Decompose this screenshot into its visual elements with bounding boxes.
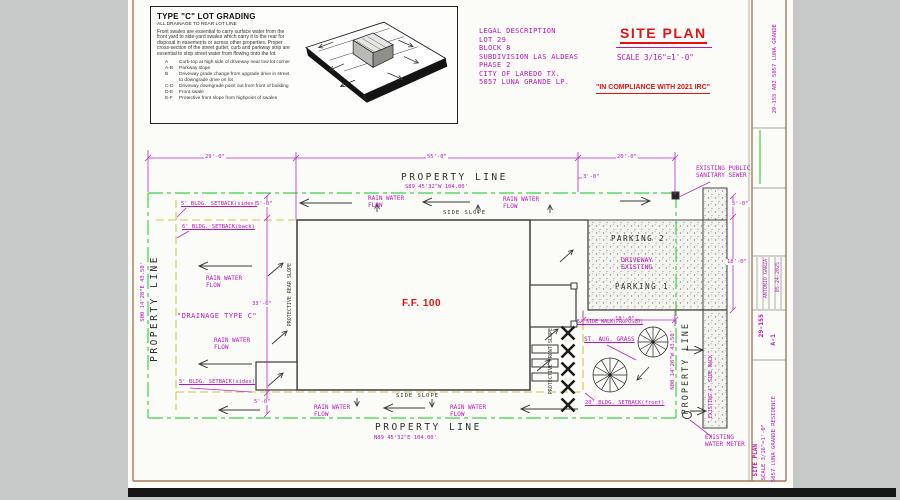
dim-20ft: 20'-0" (616, 154, 638, 160)
property-line-label-top: PROPERTY LINE (401, 173, 508, 184)
title-block-designer: ANTONIO GARZA (763, 259, 769, 298)
cad-viewer: TYPE "C" LOT GRADING ALL DRAINAGE TO REA… (0, 0, 900, 500)
title-block-title: SITE PLAN (752, 444, 759, 477)
rain-water-flow-label: RAIN WATER FLOW (206, 276, 242, 290)
property-line-label-left: PROPERTY LINE (149, 255, 160, 362)
setback-front-label: 20' BLDG. SETBACK(front) (585, 400, 664, 406)
title-block-project: 5057 LUNA GRANDE RESIDENCE (771, 396, 777, 482)
protective-rear-slope-label: PROTECTIVE REAR SLOPE (287, 263, 293, 326)
compliance-note: "IN COMPLIANCE WITH 2021 IRC" (596, 84, 710, 94)
grading-title: TYPE "C" LOT GRADING (157, 12, 293, 21)
legal-line: SUBDIVISION LAS ALDEAS (479, 53, 578, 62)
setback-back-label: 6' BLDG. SETBACK(back) (182, 224, 255, 230)
water-meter-label: EXISTING WATER METER (705, 435, 745, 449)
parking-1-label: PARKING 1 (615, 283, 669, 292)
legal-line: 5057 LUNA GRANDE LP. (479, 78, 578, 87)
setback-sides-label-bottom: 5' BLDG. SETBACK(sides) (179, 379, 255, 385)
sheet-title: SITE PLAN (620, 25, 707, 44)
rain-water-flow-label: RAIN WATER FLOW (503, 197, 539, 211)
bearing-right: N00 14'28"W 43.50' (670, 330, 676, 390)
legal-line: BLOCK 8 (479, 44, 578, 53)
grading-key-item: D-EFront swale (165, 90, 293, 95)
legal-line: CITY OF LAREDO TX. (479, 70, 578, 79)
property-line-label-right: PROPERTY LINE (681, 322, 691, 415)
grading-key-item: A-BParkway slope (165, 66, 293, 71)
bearing-left: S00 14'28"E 43.50' (140, 262, 146, 322)
lot-grading-detail-box: TYPE "C" LOT GRADING ALL DRAINAGE TO REA… (150, 6, 458, 124)
side-slope-label-bottom: SIDE SLOPE (396, 393, 439, 399)
grading-key-item: BDriveway grade change from upgrade driv… (165, 72, 293, 82)
title-block-scale: SCALE 3/16"=1'-0" (761, 424, 767, 480)
grading-key-item: ACurb-top at high side of driveway near … (165, 60, 293, 65)
legal-line: LOT 29 (479, 36, 578, 45)
rain-water-flow-label: RAIN WATER FLOW (368, 196, 404, 210)
legal-description: LEGAL DESCRIPTION LOT 29 BLOCK 8 SUBDIVI… (479, 27, 578, 87)
existing-sidewalk-label: EXISTING 4' SIDE WALK (708, 355, 714, 418)
bearing-top: S89 45'32"W 104.00' (405, 184, 468, 190)
property-line-label-bottom: PROPERTY LINE (375, 423, 482, 434)
dim-55ft: 55'-0" (426, 154, 448, 160)
dim-29ft: 29'-0" (204, 154, 226, 160)
title-underline-rule (616, 47, 712, 48)
rain-water-flow-label: RAIN WATER FLOW (214, 338, 250, 352)
drainage-type-label: "DRAINAGE TYPE C" (177, 312, 257, 320)
grading-subtitle: ALL DRAINAGE TO REAR LOT LINE (157, 22, 293, 27)
legal-line: PHASE 2 (479, 61, 578, 70)
lot-grading-figure (297, 12, 451, 112)
sanitary-sewer-label: EXISTING PUBLIC SANITARY SEWER (696, 166, 750, 180)
title-block-date: 05-24-2025 (775, 262, 781, 292)
finish-floor-label: F.F. 100 (402, 298, 441, 310)
st-aug-grass-label: ST. AUG. GRASS (584, 337, 635, 344)
grading-paragraph: Front swales are essential to carry surf… (157, 30, 293, 57)
dim-5ft-right: 5'-0" (731, 201, 750, 207)
side-slope-label-top: SIDE SLOPE (443, 210, 486, 216)
protective-front-slope-label: PROTECTIVE FRONT SLOPE (548, 328, 554, 394)
parking-2-label: PARKING 2 (611, 235, 665, 244)
rain-water-flow-label: RAIN WATER FLOW (450, 405, 486, 419)
grading-key-item: E-FProtective front slope from highpoint… (165, 96, 293, 101)
legal-line: LEGAL DESCRIPTION (479, 27, 578, 36)
scale-note: SCALE 3/16"=1'-0" (617, 54, 694, 63)
dim-33ft: 33'-6" (251, 301, 273, 307)
title-block-sheet-number: A-1 (769, 334, 777, 346)
title-block-job-number: 29-155 (757, 314, 765, 337)
title-block-side-note: 29-155 A02 5057 LUNA GRANDE (772, 24, 778, 113)
setback-sides-label-top: 5' BLDG. SETBACK(sides) (181, 201, 257, 207)
driveway-existing-label: DRIVEWAY EXISTING (621, 257, 652, 272)
grading-key-item: C-DDriveway downgrade point out from fro… (165, 84, 293, 89)
viewer-bottom-bar (128, 488, 896, 497)
rain-water-flow-label: RAIN WATER FLOW (314, 405, 350, 419)
dim-5ft-bottom: 5'-0" (253, 399, 272, 405)
grading-key-list: ACurb-top at high side of driveway near … (165, 60, 293, 101)
dim-3ft: 3'-0" (582, 174, 601, 180)
dim-5ft-top: 5'-0" (255, 201, 274, 207)
dim-18ft-right: 18'-0" (726, 259, 748, 265)
bearing-bottom: N89 45'32"E 104.00' (374, 435, 437, 441)
sidewalk-proposed-label: 5' SIDE WALK(PROPOSED) (577, 320, 643, 326)
